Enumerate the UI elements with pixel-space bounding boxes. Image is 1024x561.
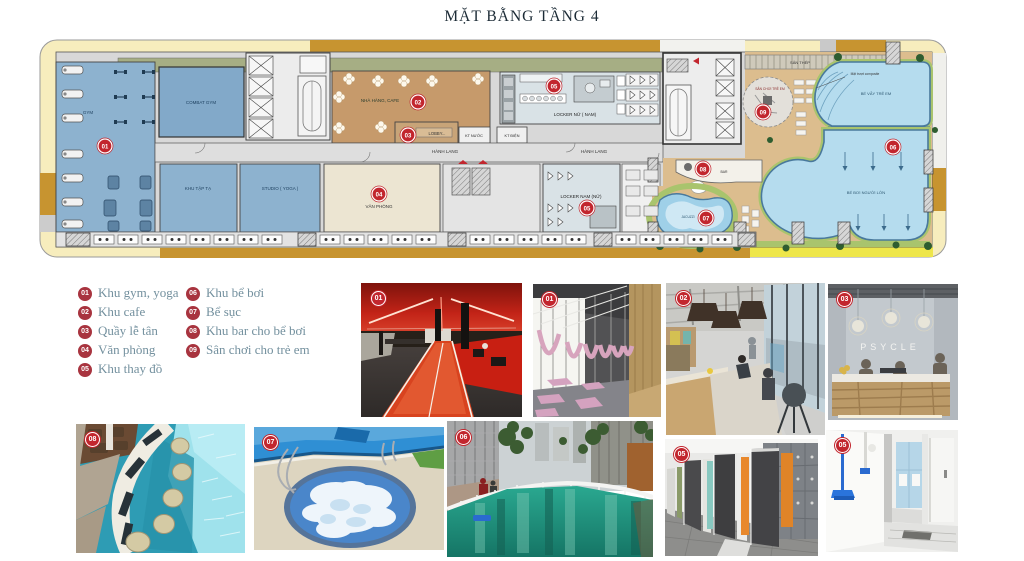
svg-text:04: 04 [376, 193, 383, 199]
svg-text:KHU TẬP TẠ: KHU TẬP TẠ [185, 185, 211, 191]
svg-text:05: 05 [584, 207, 591, 213]
svg-text:VĂN PHÒNG: VĂN PHÒNG [365, 203, 393, 209]
svg-text:09: 09 [760, 111, 767, 117]
svg-text:05: 05 [551, 85, 558, 91]
svg-text:NHÀ HÀNG, CAFE: NHÀ HÀNG, CAFE [361, 97, 399, 103]
svg-text:LOCKER NAM (NỮ): LOCKER NAM (NỮ) [560, 193, 602, 199]
svg-text:GYM: GYM [83, 110, 94, 115]
svg-text:HÀNH LANG: HÀNH LANG [432, 148, 459, 154]
svg-text:06: 06 [890, 146, 897, 152]
svg-text:JACUZZI: JACUZZI [681, 215, 694, 219]
svg-text:SÂN THÉP: SÂN THÉP [790, 60, 810, 65]
svg-text:STUDIO ( YOGA ): STUDIO ( YOGA ) [262, 186, 299, 191]
svg-text:03: 03 [405, 134, 412, 140]
svg-text:BỂ VẪY TRẺ EM: BỂ VẪY TRẺ EM [861, 91, 892, 96]
svg-text:08: 08 [700, 168, 707, 174]
svg-text:KT ĐIỆN: KT ĐIỆN [505, 133, 520, 138]
svg-text:HÀNH LANG: HÀNH LANG [581, 148, 608, 154]
svg-text:02: 02 [415, 101, 422, 107]
svg-text:COMBAT GYM: COMBAT GYM [186, 100, 217, 105]
svg-text:LOCKER NỮ ( NAM): LOCKER NỮ ( NAM) [554, 111, 597, 117]
svg-text:LOBBY...: LOBBY... [429, 131, 446, 136]
svg-text:SÂN CHƠI TRẺ EM: SÂN CHƠI TRẺ EM [755, 86, 785, 91]
svg-text:PSYCLE: PSYCLE [860, 342, 920, 352]
svg-text:BAR: BAR [721, 170, 729, 174]
svg-text:Mặt trượt composite: Mặt trượt composite [851, 72, 880, 76]
svg-text:07: 07 [703, 217, 710, 223]
svg-text:01: 01 [102, 145, 109, 151]
svg-text:KT NƯỚC: KT NƯỚC [465, 133, 483, 138]
svg-text:BỂ BƠI NGƯỜI LỚN: BỂ BƠI NGƯỜI LỚN [847, 190, 885, 195]
